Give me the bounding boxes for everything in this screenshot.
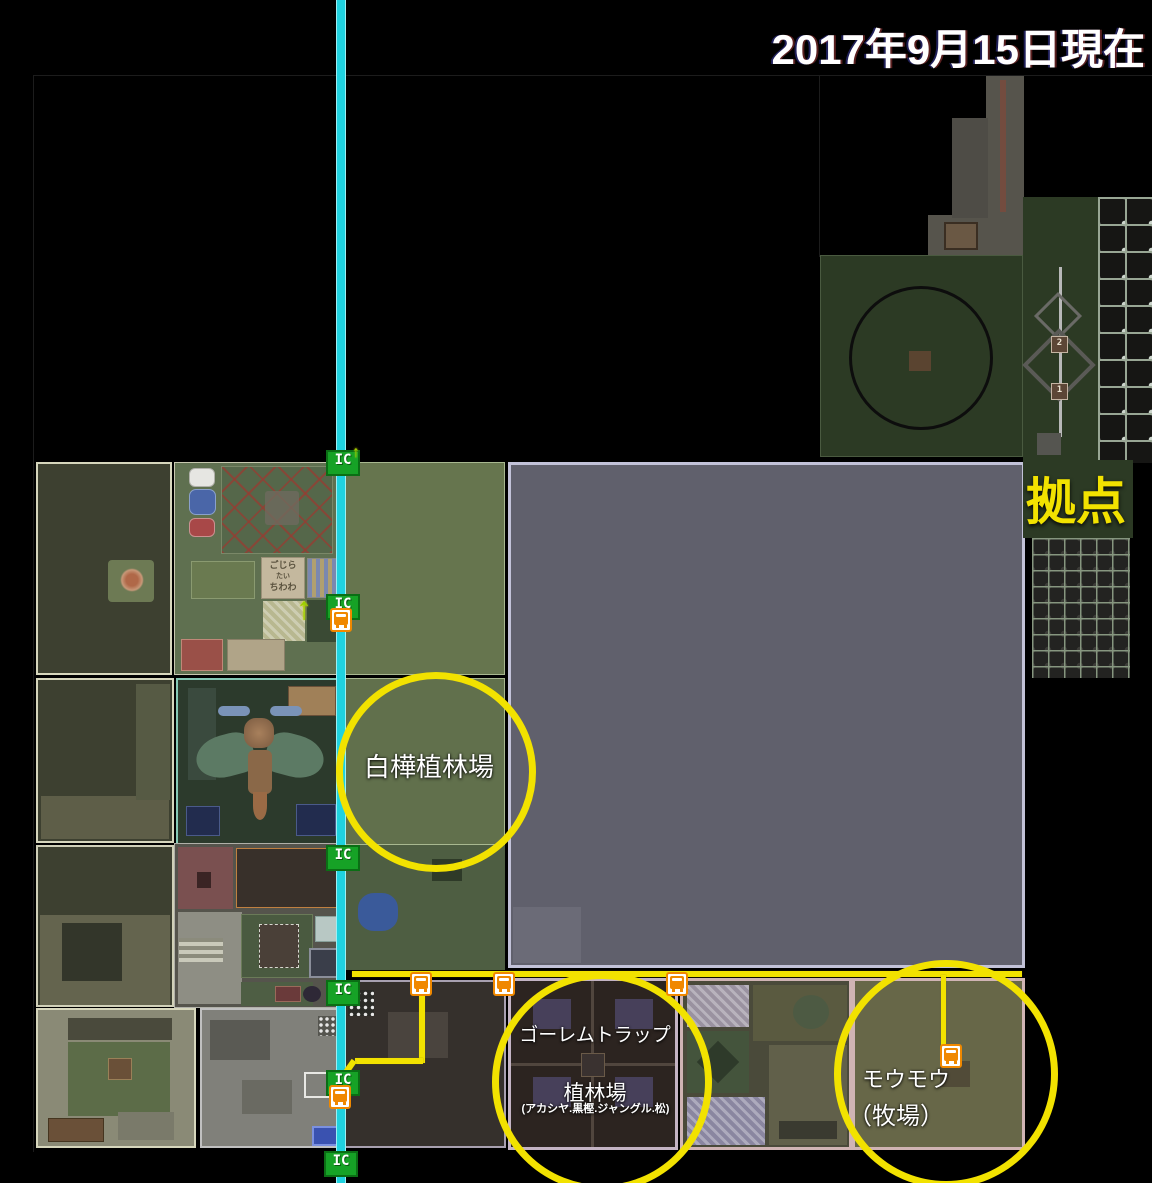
ic-station-badge: IC — [326, 845, 360, 871]
rail-marker-2: 2 — [1051, 336, 1068, 353]
gojira-sign-line1: ごじら — [262, 560, 304, 571]
map-tile-dark-field — [36, 678, 174, 843]
minecart-station-icon — [410, 972, 432, 996]
base-label: 拠点 — [1026, 462, 1126, 534]
rail-marker-1: 1 — [1051, 383, 1068, 400]
gojira-sign-line2: たい — [262, 571, 304, 582]
structure-tower-column — [986, 76, 1024, 220]
structure-wall-grid — [1098, 197, 1152, 463]
minecart-station-icon — [666, 972, 688, 996]
grid-line-vertical — [33, 75, 34, 1152]
map-tile-builds — [174, 843, 340, 1008]
ic-station-badge: IC — [326, 980, 360, 1006]
map-area-flat-gray — [508, 462, 1025, 968]
map-tile-dark-field — [36, 845, 174, 1007]
map-tile-dark-field — [36, 462, 172, 675]
structure-house — [944, 222, 978, 250]
golem-trap-label-line3: (アカシヤ.黒樫.ジャングル.松) — [488, 1100, 703, 1116]
up-arrow-icon: ↑ — [296, 590, 312, 627]
ranch-label-line2: （牧場） — [848, 1096, 944, 1131]
structure-storage-grid — [1032, 538, 1130, 678]
pond — [358, 893, 398, 931]
map-canvas: ごじら たい ちわわ — [0, 0, 1152, 1183]
structure-tower-wing — [952, 118, 988, 218]
golem-trap-label-line1: ゴーレムトラップ — [495, 1020, 695, 1047]
date-title: 2017年9月15日現在 — [600, 16, 1145, 77]
ranch-label-line1: モウモウ — [862, 1062, 950, 1094]
map-tile-village: ごじら たい ちわわ — [174, 462, 340, 675]
ic-station-badge: IC — [324, 1151, 358, 1177]
map-tile-circle-field — [820, 255, 1023, 457]
rose-pattern — [120, 568, 144, 592]
map-tile-stone-works — [200, 1008, 338, 1148]
map-tile-field-north — [342, 462, 505, 675]
angel-head — [244, 718, 274, 748]
grid-line-vertical — [819, 75, 820, 257]
map-tile-angel-art — [176, 678, 340, 845]
dot-grid-structure — [318, 1016, 338, 1036]
up-arrow-icon: ↑ — [352, 444, 360, 462]
map-tile-farm-village — [36, 1008, 196, 1148]
minecart-station-icon — [329, 1085, 351, 1109]
minecart-station-icon — [330, 608, 352, 632]
minecart-station-icon — [493, 972, 515, 996]
birch-plantation-label: 白樺植林場 — [336, 747, 522, 784]
branch-rail-jog — [355, 1058, 423, 1064]
map-tile-rail-yard — [1023, 197, 1098, 460]
